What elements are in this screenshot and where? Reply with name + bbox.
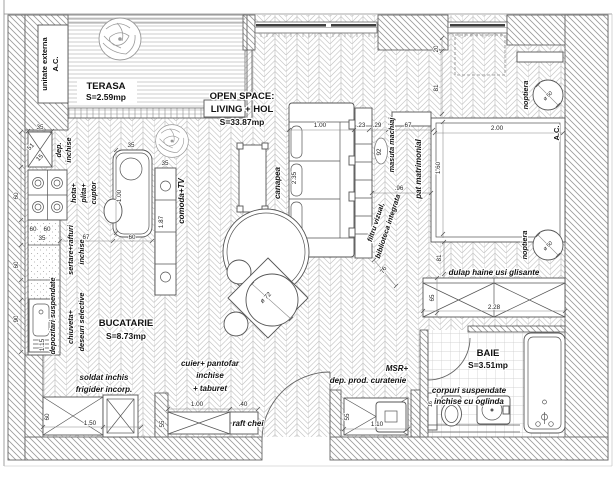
living-window: [255, 22, 377, 37]
label-pat-matrimonial: pat matrimonial: [414, 138, 423, 199]
room-terasa: TERASA: [86, 81, 125, 92]
plant-living: [156, 125, 189, 158]
label-comoda-tv: comoda+TV: [177, 178, 186, 224]
dim-bed-l: 1.60: [435, 161, 442, 174]
label-canapea: canapea: [273, 166, 282, 199]
label-masuta-machiaj: masuta machiaj: [387, 117, 396, 173]
coat-shoe-cabinet: [168, 412, 230, 434]
room-terasa-area: S=2.59mp: [86, 92, 126, 102]
dim-baie-shelf: 16: [428, 401, 434, 407]
label-hota-2: plita+: [79, 183, 88, 204]
wall-bath-top: [468, 326, 565, 332]
dim-sofa-len: 2.35: [291, 171, 298, 184]
label-msr-1: MSR+: [386, 364, 409, 373]
wall-column-kitchen: [25, 355, 43, 437]
bathtub: [524, 333, 565, 433]
dim-dep-width: 35: [36, 124, 44, 131]
washing-machine: [344, 398, 408, 435]
dim-machiaj-len: 92: [376, 148, 383, 156]
dim-gap-a: .23: [357, 122, 366, 129]
label-noptiera-top: noptiera: [521, 81, 530, 110]
label-soldat-2: frigider incorp.: [76, 385, 132, 394]
label-cuier-2: inchise: [196, 371, 224, 380]
coffee-table: [237, 143, 268, 212]
dim-counter-b: 60: [43, 226, 51, 233]
floor-plan-drawing: TERASA S=2.59mp OPEN SPACE: LIVING + HOL…: [0, 0, 616, 480]
double-bed: [431, 118, 565, 242]
label-corpuri-2: inchise cu oglinda: [434, 397, 504, 406]
dim-island-w: 60: [128, 234, 136, 241]
label-sertare-1: sertare+rafturi: [66, 224, 75, 275]
label-corpuri-1: corpuri suspendate: [432, 386, 507, 395]
label-unitate-externa: unitate externa: [40, 37, 49, 91]
label-unitate-externa-ac: A.C.: [51, 57, 60, 72]
dim-sink-len: 1.15: [39, 338, 46, 351]
wall-pier-top: [378, 15, 448, 50]
label-dep-1: dep.: [54, 143, 63, 158]
wall-msr-right: [411, 390, 420, 437]
dim-sofa-w: 1.00: [314, 122, 327, 129]
stove: [28, 170, 67, 220]
dim-comoda-top: 35: [161, 160, 169, 167]
label-hota-3: cuptor: [89, 180, 98, 204]
label-dulap: dulap haine usi glisante: [449, 268, 540, 277]
label-soldat-1: soldat inchis: [80, 373, 129, 382]
base-cabinet: [43, 397, 103, 435]
dim-gap-b: .29: [373, 122, 382, 129]
label-raft-chei: raft chei: [232, 419, 264, 428]
dim-dulap-d: 65: [429, 294, 436, 302]
dim-cabinet-len: 1.50: [84, 420, 97, 427]
label-sertare-2: inchise: [77, 239, 86, 264]
wall-pier-entry: [155, 393, 168, 437]
dim-counter-a: 60: [29, 226, 37, 233]
dim-comoda-len: 1.87: [158, 215, 165, 228]
headboard-shelf: [517, 52, 563, 62]
dim-cuier-len: 1.00: [191, 401, 204, 408]
dim-cuier-d: 55: [159, 420, 166, 428]
dim-dulap-len: 2.28: [488, 304, 501, 311]
dim-opening-a: 81: [433, 84, 440, 92]
dim-counter-d: 60: [13, 261, 20, 269]
fridge: [103, 395, 138, 437]
label-cuier-3: + taburet: [193, 384, 227, 393]
floor-plan-page: TERASA S=2.59mp OPEN SPACE: LIVING + HOL…: [0, 0, 616, 480]
label-hota-1: hota+: [69, 182, 78, 202]
label-noptiera-bottom: noptiera: [520, 231, 529, 260]
label-depozitari: depozitari suspendate: [48, 277, 57, 354]
dim-msr-len: 1.10: [371, 421, 384, 428]
label-ac-bedroom: A.C.: [552, 126, 561, 141]
label-chiuveta-1: chiuveta+: [66, 309, 75, 344]
dim-gap-c: 67: [404, 122, 412, 129]
room-bucatarie-area: S=8.73mp: [106, 331, 146, 341]
wall-msr-left: [330, 390, 341, 437]
dim-island-top: 35: [127, 142, 135, 149]
label-chiuveta-2: deseuri selective: [77, 293, 86, 352]
wall-bottom-right: [330, 437, 608, 460]
dim-bed-w: 2.00: [491, 125, 504, 132]
label-cuier-1: cuier+ pantofar: [181, 359, 240, 368]
wall-pier-terrace: [243, 15, 255, 50]
room-openspace-2: LIVING + HOL: [211, 104, 274, 115]
dining-chair: [224, 312, 248, 336]
tv-console: [155, 168, 176, 295]
dim-island-len: 1.00: [116, 189, 123, 202]
label-dep-2: inchise: [64, 137, 73, 162]
wall-bottom-left: [25, 437, 262, 460]
label-msr-2: dep. prod. curatenie: [330, 376, 407, 385]
plant-terrace: [99, 18, 141, 60]
wall-right: [565, 15, 608, 460]
dim-aisle: 67: [82, 234, 90, 241]
dim-raft-w: .40: [239, 401, 248, 408]
room-baie-area: S=3.51mp: [468, 360, 508, 370]
dim-cabinet-d: 60: [44, 413, 51, 421]
wall-bath-left: [420, 330, 428, 437]
dim-counter-c: 35: [38, 235, 46, 242]
room-openspace-1: OPEN SPACE:: [210, 91, 275, 102]
dim-sink-h: 90: [13, 315, 20, 323]
dim-machiaj-gap: .96: [395, 185, 404, 192]
room-openspace-area: S=33.87mp: [220, 117, 265, 127]
room-baie: BAIE: [477, 348, 500, 359]
wall-left: [8, 15, 25, 460]
dim-msr-d: 55: [344, 413, 351, 421]
room-bucatarie: BUCATARIE: [99, 318, 154, 329]
dim-opening-b: 81: [436, 254, 443, 262]
dim-win-gap: 20: [433, 45, 440, 53]
dim-stove: 60: [13, 192, 20, 200]
